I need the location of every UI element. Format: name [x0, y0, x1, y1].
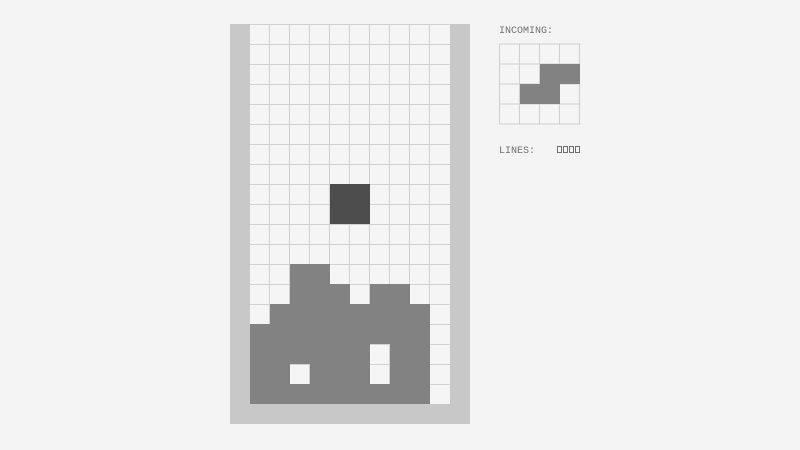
svg-text:INCOMING:: INCOMING: — [499, 26, 553, 37]
svg-text:LINES:: LINES: — [499, 146, 535, 157]
